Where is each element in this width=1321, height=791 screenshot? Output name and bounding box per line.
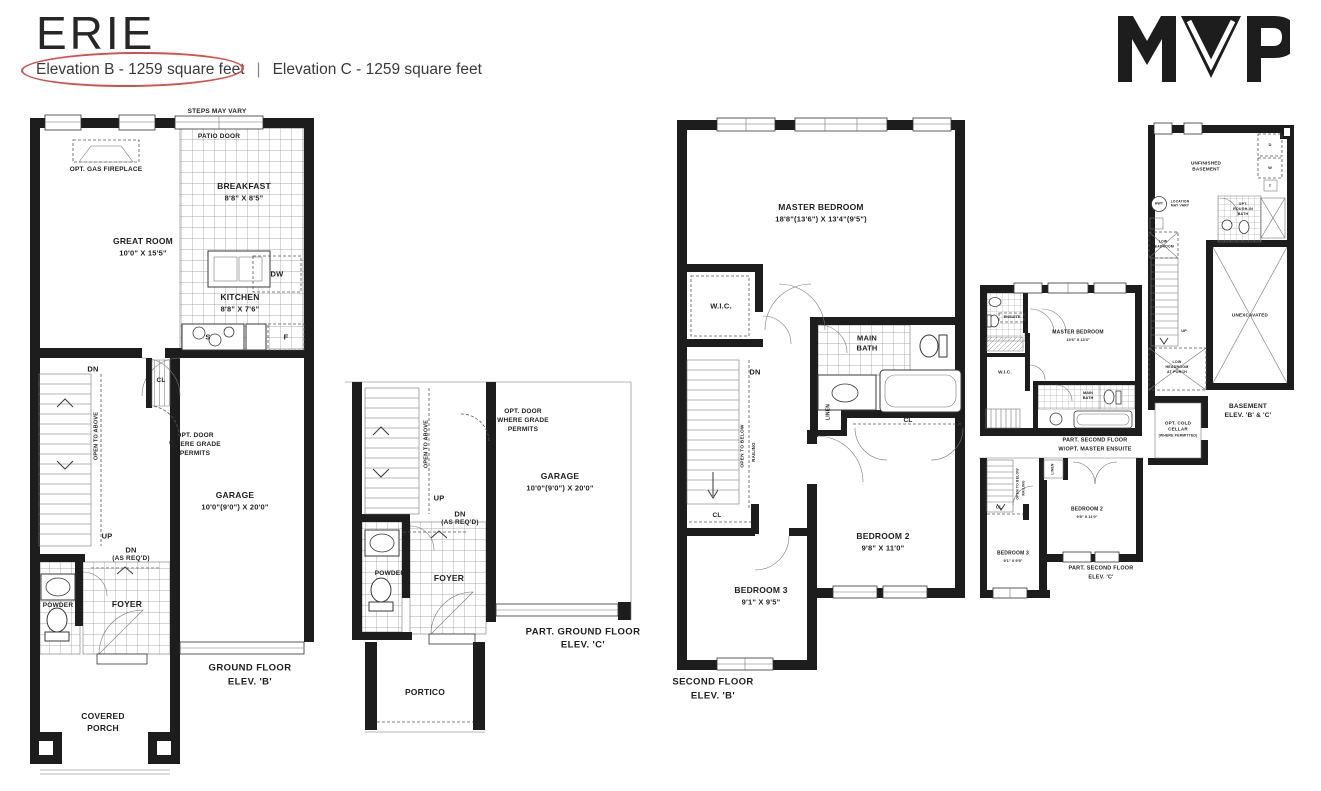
kitchen-label: KITCHEN [220, 293, 259, 302]
basement-caption1: BASEMENT [1229, 404, 1267, 411]
part-second-floor-ensuite-plan: ENSUITE GLASS SHOWER W.I.C. MASTER BEDRO… [978, 281, 1144, 457]
covered-porch-line1: COVERED [81, 712, 124, 721]
garage-door [180, 642, 304, 654]
mvp-logo: MVP [1118, 16, 1290, 93]
ensuite-label: ENSUITE [1004, 315, 1021, 319]
stairs [365, 388, 429, 514]
opt-door-line3: PERMITS [508, 427, 538, 434]
porch-posts [30, 732, 180, 774]
glass-shower-label: GLASS SHOWER [989, 353, 1021, 357]
toilet-icon [45, 608, 69, 641]
basement-plan: UNFINISHED BASEMENT D W T HWT LOCATION M… [1146, 120, 1296, 478]
linen-label: LINEN [1051, 463, 1054, 474]
stairs [986, 409, 1020, 428]
glass-shower-area [987, 337, 1023, 351]
low-headroom-1-line1: LOW [1159, 240, 1168, 243]
part-ground-c-caption2: ELEV. 'C' [561, 640, 605, 650]
foyer-label: FOYER [434, 574, 464, 583]
dn-label: DN [749, 368, 760, 376]
ensuite-caption1: PART. SECOND FLOOR [1063, 438, 1128, 444]
ground-b-caption2: ELEV. 'B' [228, 677, 272, 687]
garage-dims: 10'0"(9'0") X 20'0" [201, 503, 268, 511]
elevation-c-label: Elevation C - 1259 square feet [273, 61, 482, 79]
great-room-label: GREAT ROOM [113, 237, 173, 246]
powder-sink-icon [41, 574, 75, 600]
at-porch-label: AT PORCH [1167, 371, 1187, 375]
main-bath-line2: BATH [1083, 396, 1094, 400]
master-bedroom-dims: 13'6" X 13'4" [1066, 338, 1089, 342]
dn-label: DN [454, 510, 465, 518]
patio-door-label: PATIO DOOR [198, 134, 240, 141]
mvp-logo-icon: MVP [1118, 16, 1290, 88]
up-label: UP [102, 532, 113, 540]
washer-label: W [1268, 166, 1272, 170]
windows [45, 115, 263, 130]
breakfast-dims: 8'8" X 8'5" [225, 194, 264, 202]
cold-cellar-line1: OPT. COLD [1165, 422, 1191, 427]
fridge-label: F [284, 333, 289, 341]
subtitle-divider: | [257, 61, 261, 79]
linen-label: LINEN [827, 404, 832, 420]
part-ground-floor-plan-elev-c: OPEN TO ABOVE OPT. DOOR WHERE GRADE PERM… [343, 374, 635, 756]
rough-in-line3: BATH [1238, 213, 1249, 217]
opt-door-line2: WHERE GRADE [497, 418, 549, 425]
powder-label: POWDER [375, 571, 405, 578]
ground-b-caption1: GROUND FLOOR [209, 663, 292, 673]
garage-label: GARAGE [216, 491, 255, 500]
stairs [39, 374, 101, 546]
part-second-c-caption2: ELEV. 'C' [1088, 575, 1113, 581]
powder-label: POWDER [43, 603, 73, 610]
foyer-label: FOYER [112, 600, 142, 609]
fireplace-icon [73, 140, 139, 162]
opt-door-line1: OPT. DOOR [176, 433, 214, 440]
opt-door-line2: WHERE GRADE [169, 442, 221, 449]
opt-door-arc [461, 414, 489, 442]
toilet-icon [369, 578, 393, 611]
wic-label: W.I.C. [710, 302, 732, 310]
location-line2: MAY VARY [1171, 204, 1189, 207]
powder-sink-icon [365, 530, 399, 556]
unexcavated-label: UNEXCAVATED [1232, 314, 1268, 319]
part-second-floor-plan-elev-c: OPEN TO BELOW RAILING LINEN CL BEDROOM 2… [977, 452, 1145, 604]
counter [246, 324, 266, 350]
great-room-dims: 10'0" X 15'5" [119, 249, 166, 257]
bedroom3-label: BEDROOM 3 [734, 586, 787, 595]
cl-label: CL [156, 378, 165, 385]
garage-dims: 10'0"(9'0") X 20'0" [526, 484, 593, 492]
cl-label: CL [903, 418, 912, 425]
bedroom2-dims: 9'8" X 11'0" [1077, 515, 1098, 519]
kitchen-dims: 8'8" X 7'6" [221, 305, 260, 313]
front-door [97, 654, 147, 664]
opt-gas-fireplace-label: OPT. GAS FIREPLACE [70, 167, 143, 174]
ground-floor-plan-elev-b: STEPS MAY VARY PATIO DOOR OPT. GAS FIREP… [27, 106, 317, 786]
low-headroom-1-line2: HEADROOM [1152, 245, 1174, 248]
cold-cellar-line3: (WHERE PERMITTED) [1159, 434, 1198, 437]
breakfast-label: BREAKFAST [217, 182, 271, 191]
kitchen-sink-icon [182, 324, 244, 350]
main-bath-line2: BATH [856, 344, 877, 352]
floor-plan-sheet: ERIE Elevation B - 1259 square feet | El… [0, 0, 1321, 791]
rough-in-bath [1218, 196, 1285, 242]
bedroom3-dims: 9'1" X 9'5" [742, 598, 781, 606]
opt-door-line3: PERMITS [180, 451, 210, 458]
unfinished-basement-line2: BASEMENT [1192, 168, 1219, 173]
unfinished-basement-line1: UNFINISHED [1191, 162, 1221, 167]
master-bedroom-label: MASTER BEDROOM [778, 203, 863, 212]
portico-label: PORTICO [405, 688, 445, 697]
bathtub-icon [880, 370, 961, 412]
railing-label: RAILING [1022, 480, 1025, 495]
as-reqd-label: (AS REQ'D) [441, 520, 479, 527]
railing-label: RAILING [752, 442, 756, 461]
stairs [1151, 258, 1178, 346]
bedroom3-dims: 9'1" X 9'5" [1004, 559, 1023, 563]
up-label: UP [1181, 329, 1186, 333]
dw-label: DW [271, 270, 284, 278]
tub-label: T [1269, 184, 1271, 188]
part-ground-c-caption1: PART. GROUND FLOOR [526, 627, 641, 637]
dn2-label: DN [125, 546, 136, 554]
garage-door [496, 604, 618, 616]
hwt-label: HWT [1155, 202, 1163, 205]
dn-label: DN [87, 365, 98, 373]
second-floor-plan-elev-b: MASTER BEDROOM 18'8"(13'6") X 13'4"(9'5"… [673, 112, 969, 712]
master-bedroom-label: MASTER BEDROOM [1052, 331, 1103, 336]
main-bath-line1: MAIN [857, 334, 877, 342]
walls [1148, 125, 1294, 465]
bedroom3-label: BEDROOM 3 [997, 552, 1029, 557]
open-to-below-label: OPEN TO BELOW [742, 424, 747, 467]
bedroom2-label: BEDROOM 2 [1071, 508, 1103, 513]
steps-may-vary-label: STEPS MAY VARY [188, 109, 247, 116]
garage-label: GARAGE [541, 472, 580, 481]
cl-label: CL [996, 506, 1003, 511]
up-label: UP [434, 494, 445, 502]
part-second-c-caption1: PART. SECOND FLOOR [1069, 566, 1134, 572]
sink-label: S [205, 333, 210, 341]
wic-label: W.I.C. [998, 371, 1012, 376]
opt-door-line1: OPT. DOOR [504, 409, 542, 416]
master-bedroom-dims: 18'8"(13'6") X 13'4"(9'5") [775, 215, 867, 223]
bedroom2-label: BEDROOM 2 [856, 532, 909, 541]
toilet-icon [920, 335, 947, 357]
second-b-caption2: ELEV. 'B' [691, 691, 735, 701]
open-to-above-label: OPEN TO ABOVE [94, 412, 100, 460]
walls [980, 458, 1143, 598]
open-to-above-label: OPEN TO ABOVE [424, 420, 430, 468]
dryer-label: D [1269, 143, 1272, 147]
second-b-caption1: SECOND FLOOR [672, 677, 753, 687]
basement-caption2: ELEV. 'B' & 'C' [1225, 413, 1272, 420]
part-ground-c-drawing [343, 374, 635, 754]
part-second-c-drawing [977, 452, 1145, 604]
windows [1014, 283, 1126, 293]
part-second-ensuite-drawing [978, 281, 1144, 455]
bedroom2-dims: 9'8" X 11'0" [862, 544, 905, 552]
open-to-below-label: OPEN TO BELOW [1016, 468, 1019, 499]
cold-cellar-line2: CELLAR [1168, 428, 1188, 433]
as-reqd-label: (AS REQ'D) [112, 556, 150, 563]
covered-porch-line2: PORCH [87, 724, 119, 733]
cl-label-2: CL [712, 513, 721, 520]
